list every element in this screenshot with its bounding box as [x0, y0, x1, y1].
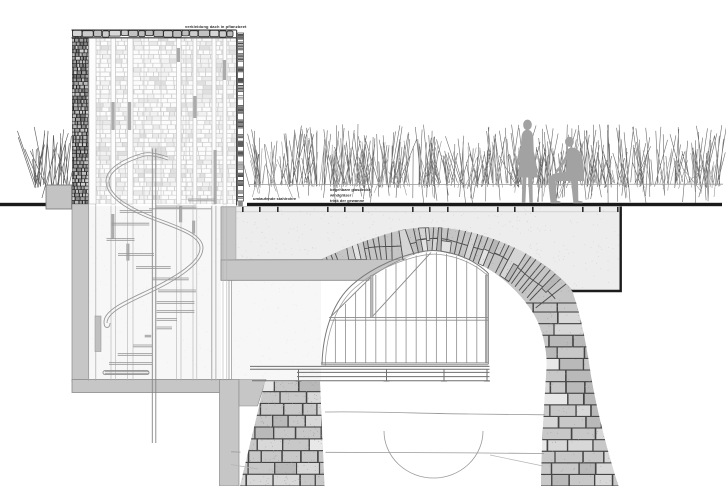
svg-text:umlaufende stahlrohre: umlaufende stahlrohre	[253, 196, 297, 201]
svg-text:begehbare glasdecke: begehbare glasdecke	[330, 187, 371, 192]
svg-text:windgräser: windgräser	[329, 192, 352, 197]
svg-text:trink der gewanne: trink der gewanne	[330, 198, 365, 203]
svg-text:verkleidung dach in pflanzbeet: verkleidung dach in pflanzbeet	[185, 24, 247, 29]
